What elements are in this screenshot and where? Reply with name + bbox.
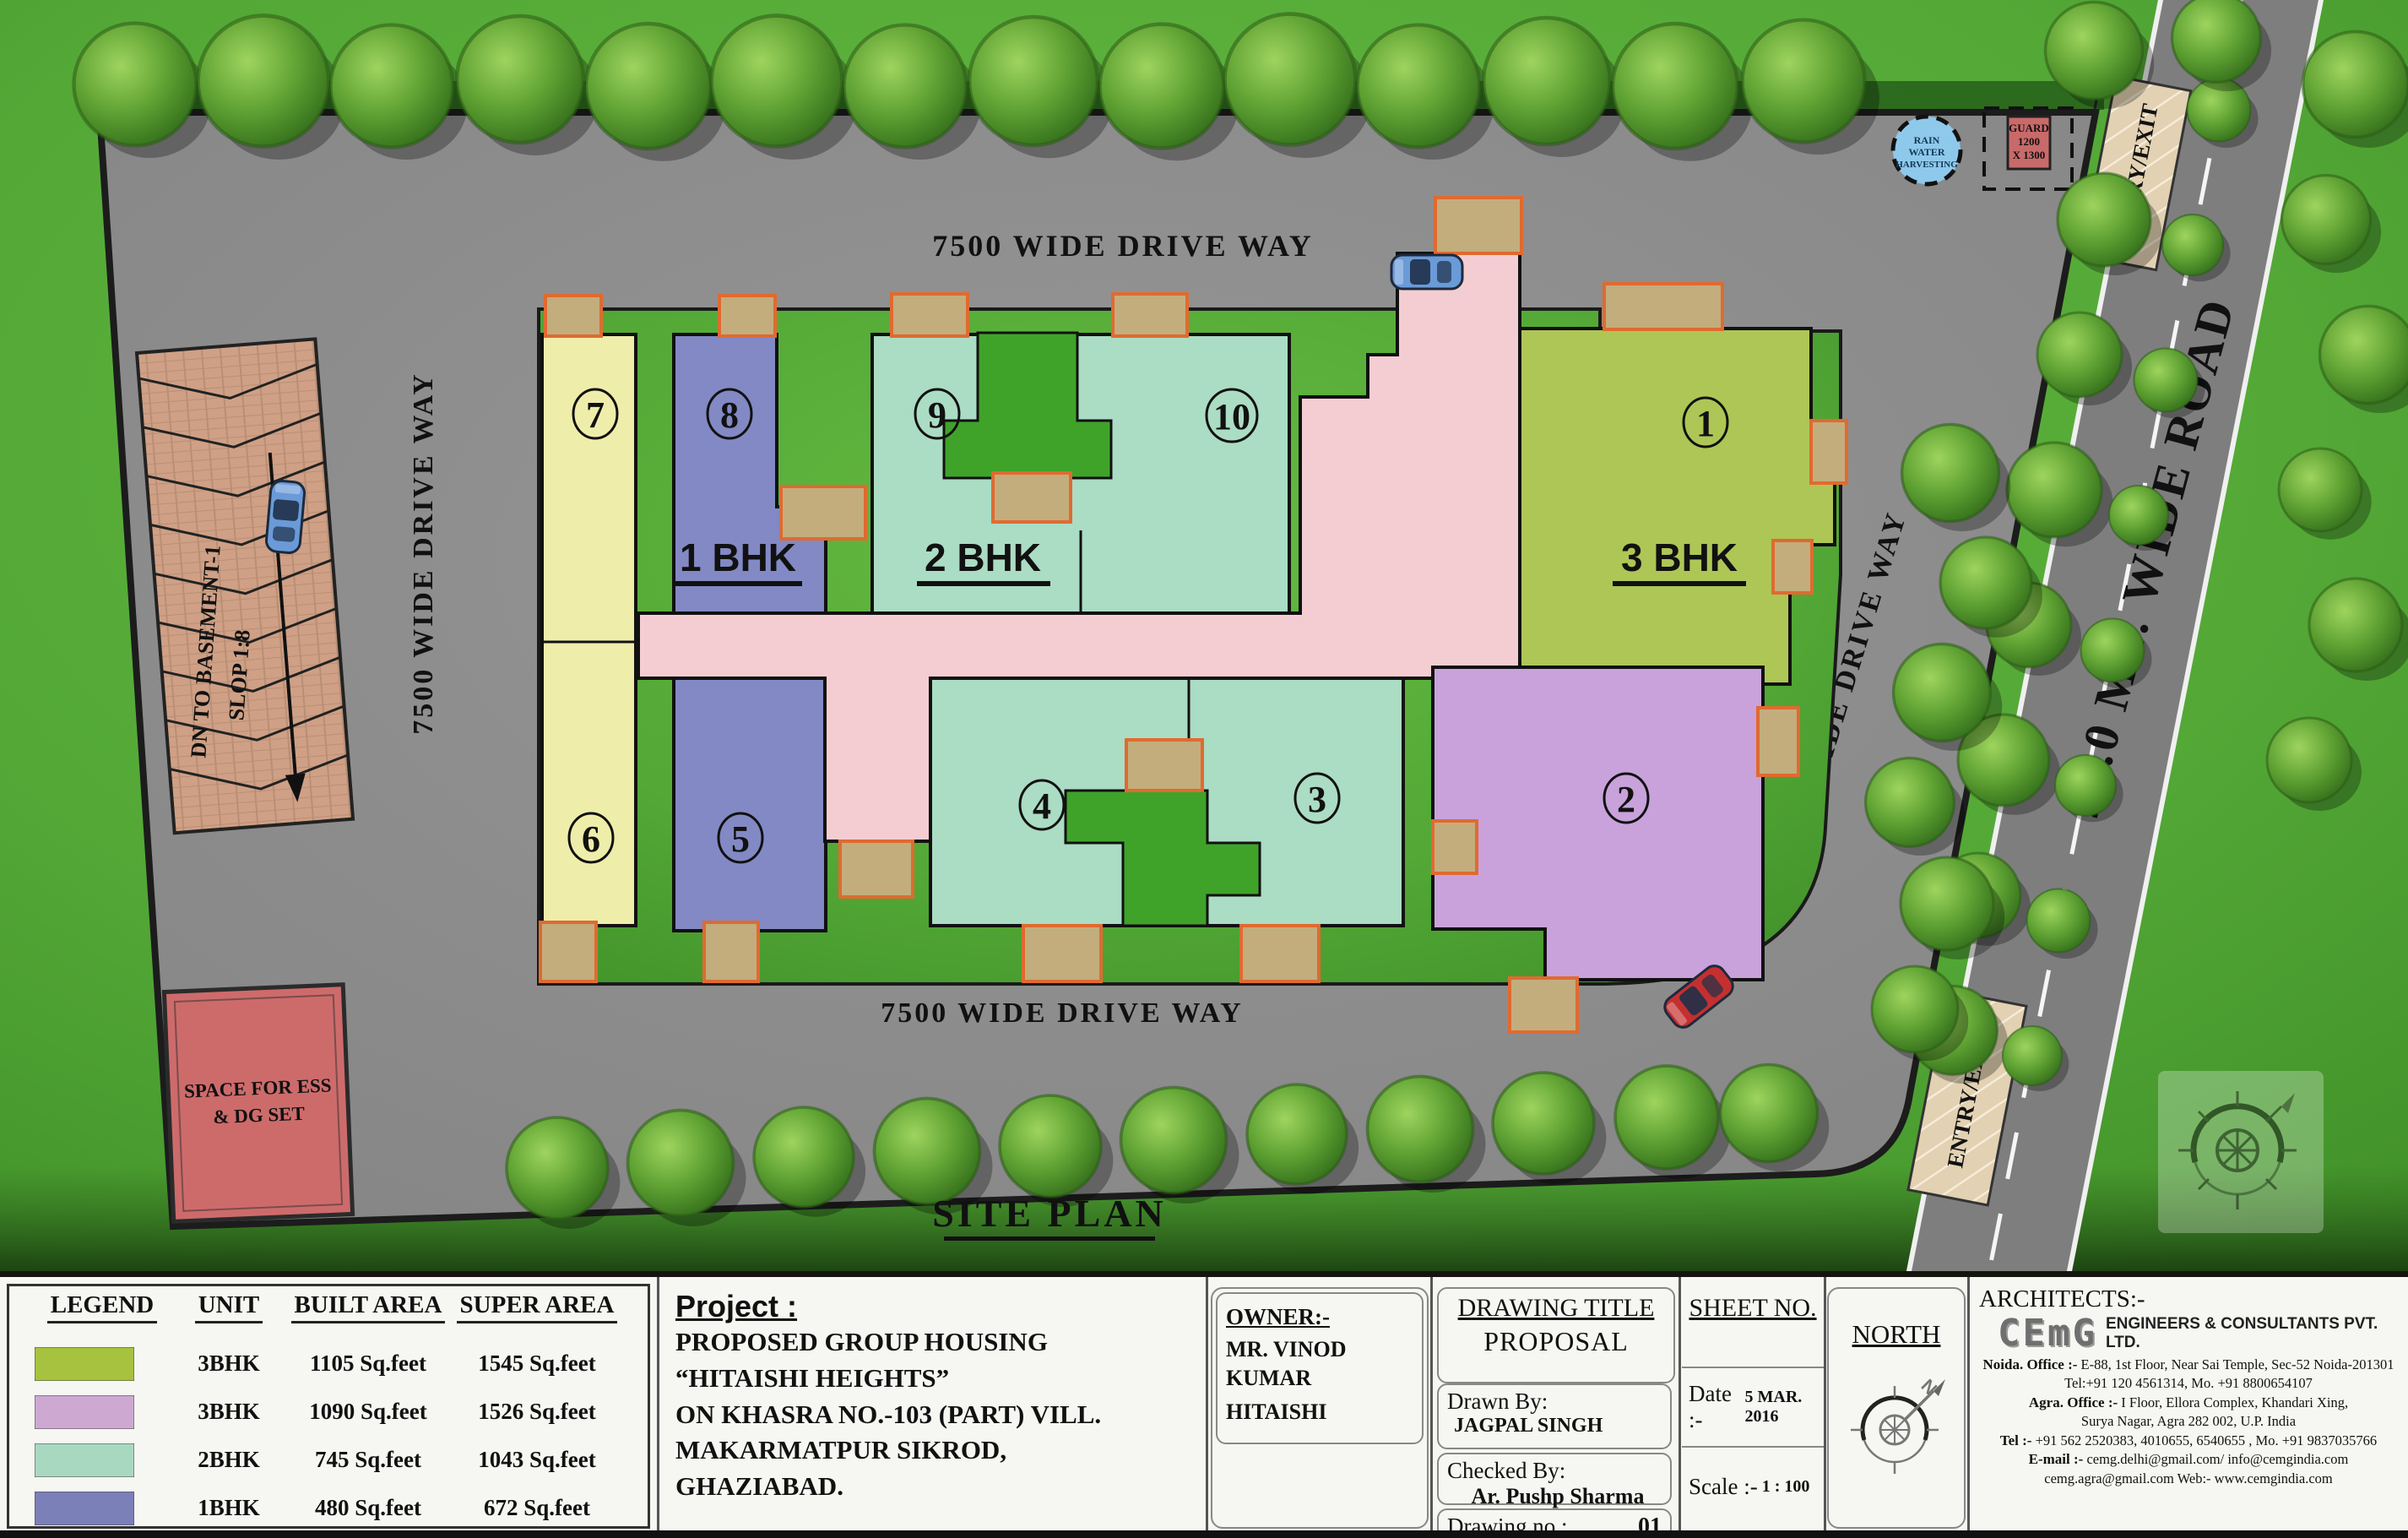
legend-unit: 2BHK bbox=[198, 1447, 260, 1473]
legend-header-built: BUILT AREA bbox=[291, 1291, 446, 1323]
svg-text:2: 2 bbox=[1617, 779, 1635, 820]
svg-text:9: 9 bbox=[928, 394, 946, 436]
compass-watermark-icon bbox=[2158, 1071, 2324, 1233]
driveway-label-top: 7500 WIDE DRIVE WAY bbox=[932, 229, 1313, 263]
svg-text:5: 5 bbox=[731, 818, 750, 860]
svg-text:X 1300: X 1300 bbox=[2013, 149, 2046, 161]
cemg-logo: CEmG bbox=[1998, 1317, 2097, 1351]
site-plan-drawing: 24.0 MT. WIDE ROAD DN TO BASEMENT-1 SLOP… bbox=[0, 0, 2408, 1271]
legend-built-area: 745 Sq.feet bbox=[315, 1447, 421, 1473]
ess-dg-box: SPACE FOR ESS & DG SET bbox=[164, 985, 352, 1222]
svg-text:7: 7 bbox=[586, 394, 605, 436]
north-block: NORTH N bbox=[1827, 1287, 1966, 1529]
legend-super-area: 1545 Sq.feet bbox=[478, 1351, 595, 1377]
legend-super-area: 1526 Sq.feet bbox=[478, 1399, 595, 1425]
title-block: LEGEND UNIT BUILT AREA SUPER AREA 3BHK 1… bbox=[0, 1271, 2408, 1538]
svg-text:6: 6 bbox=[582, 818, 600, 860]
svg-text:8: 8 bbox=[720, 394, 739, 436]
project-line: ON KHASRA NO.-103 (PART) VILL. bbox=[675, 1397, 1201, 1433]
plan-title: SITE PLAN bbox=[932, 1192, 1167, 1241]
svg-text:10: 10 bbox=[1213, 396, 1250, 437]
ess-label-line2: & DG SET bbox=[213, 1103, 306, 1128]
address-line: Noida. Office :- E-88, 1st Floor, Near S… bbox=[1979, 1356, 2398, 1374]
legend-built-area: 1090 Sq.feet bbox=[309, 1399, 426, 1425]
owner-name-line1: MR. VINOD KUMAR bbox=[1226, 1335, 1413, 1393]
scale-value: 1 : 100 bbox=[1758, 1477, 1810, 1497]
legend-header-legend: LEGEND bbox=[47, 1291, 157, 1323]
label-1bhk: 1 BHK bbox=[680, 535, 796, 579]
svg-text:RAIN: RAIN bbox=[1914, 134, 1940, 146]
address-line: Agra. Office :- I Floor, Ellora Complex,… bbox=[1979, 1394, 2398, 1412]
drawing-title-label: DRAWING TITLE bbox=[1439, 1294, 1673, 1323]
project-line: GHAZIABAD. bbox=[675, 1469, 1201, 1505]
label-2bhk: 2 BHK bbox=[925, 535, 1041, 579]
north-label: NORTH bbox=[1829, 1319, 1964, 1350]
legend-built-area: 480 Sq.feet bbox=[315, 1495, 421, 1521]
legend-swatch-2bhk bbox=[35, 1443, 134, 1477]
car-on-ramp bbox=[265, 480, 305, 553]
svg-text:SITE PLAN: SITE PLAN bbox=[932, 1192, 1167, 1235]
legend-swatch-1bhk-a bbox=[35, 1492, 134, 1525]
legend-unit: 1BHK bbox=[198, 1495, 260, 1521]
drawing-no-value: 01 bbox=[1631, 1514, 1662, 1538]
legend-swatch-3bhk-a bbox=[35, 1347, 134, 1381]
checked-by-value: Ar. Pushp Sharma bbox=[1447, 1484, 1662, 1509]
drawing-title-value: PROPOSAL bbox=[1439, 1326, 1673, 1357]
architects-block: ARCHITECTS:- CEmG ENGINEERS & CONSULTANT… bbox=[1971, 1284, 2403, 1530]
legend-table: LEGEND UNIT BUILT AREA SUPER AREA 3BHK 1… bbox=[7, 1284, 650, 1529]
legend-super-area: 672 Sq.feet bbox=[484, 1495, 590, 1521]
owner-name-line2: HITAISHI bbox=[1226, 1398, 1413, 1427]
legend-built-area: 1105 Sq.feet bbox=[310, 1351, 426, 1377]
drawn-by-value: JAGPAL SINGH bbox=[1447, 1415, 1603, 1437]
svg-text:1200: 1200 bbox=[2018, 135, 2040, 148]
project-line: MAKARMATPUR SIKROD, bbox=[675, 1432, 1201, 1469]
owner-label: OWNER:- bbox=[1226, 1304, 1413, 1330]
building-1 bbox=[1520, 329, 1835, 684]
address-line: Tel:+91 120 4561314, Mo. +91 8800654107 bbox=[1979, 1374, 2398, 1393]
address-line: Tel :- +91 562 2520383, 4010655, 6540655… bbox=[1979, 1432, 2398, 1450]
date-value: 5 MAR. 2016 bbox=[1741, 1388, 1824, 1427]
label-3bhk: 3 BHK bbox=[1621, 535, 1738, 579]
driveway-label-left: 7500 WIDE DRIVE WAY bbox=[408, 372, 439, 735]
north-n-glyph: N bbox=[1917, 1375, 1941, 1399]
checked-by-label: Checked By: bbox=[1447, 1458, 1565, 1483]
project-line: PROPOSED GROUP HOUSING bbox=[675, 1324, 1201, 1361]
project-label: Project : bbox=[675, 1289, 1201, 1324]
building-number-10: 10 bbox=[1207, 389, 1257, 442]
legend-header-super: SUPER AREA bbox=[457, 1291, 618, 1323]
drawing-block: DRAWING TITLE PROPOSAL Drawn By: JAGPAL … bbox=[1434, 1285, 1679, 1532]
legend-super-area: 1043 Sq.feet bbox=[478, 1447, 595, 1473]
basement-ramp bbox=[137, 339, 353, 833]
address-line: Surya Nagar, Agra 282 002, U.P. India bbox=[1979, 1412, 2398, 1431]
svg-text:WATER: WATER bbox=[1908, 146, 1944, 158]
scale-label: Scale :- bbox=[1689, 1474, 1758, 1500]
architects-label: ARCHITECTS:- bbox=[1979, 1285, 2398, 1313]
car-top-driveway bbox=[1391, 255, 1462, 289]
legend-unit: 3BHK bbox=[198, 1399, 260, 1425]
drawn-by-label: Drawn By: bbox=[1447, 1389, 1548, 1414]
north-compass-icon: N bbox=[1829, 1350, 1964, 1493]
site-plan-sheet: 24.0 MT. WIDE ROAD DN TO BASEMENT-1 SLOP… bbox=[0, 0, 2408, 1538]
date-label: Date :- bbox=[1689, 1381, 1741, 1433]
svg-text:HARVESTING: HARVESTING bbox=[1895, 160, 1958, 170]
svg-text:GUARD: GUARD bbox=[2009, 122, 2049, 134]
company-name: ENGINEERS & CONSULTANTS PVT. LTD. bbox=[2106, 1315, 2398, 1352]
rain-water-harvesting: RAIN WATER HARVESTING bbox=[1893, 117, 1961, 184]
svg-text:3: 3 bbox=[1308, 779, 1326, 820]
sheet-block: SHEET NO. Date :- 5 MAR. 2016 Scale :- 1… bbox=[1682, 1285, 1824, 1532]
svg-text:4: 4 bbox=[1033, 785, 1051, 827]
sheet-no-label: SHEET NO. bbox=[1689, 1294, 1816, 1323]
svg-text:1: 1 bbox=[1696, 403, 1715, 444]
address-line: E-mail :- cemg.delhi@gmail.com/ info@cem… bbox=[1979, 1450, 2398, 1469]
project-line: “HITAISHI HEIGHTS” bbox=[675, 1361, 1201, 1397]
project-block: Project : PROPOSED GROUP HOUSING “HITAIS… bbox=[660, 1284, 1201, 1529]
owner-block: OWNER:- MR. VINOD KUMAR HITAISHI bbox=[1211, 1287, 1429, 1529]
driveway-label-bottom: 7500 WIDE DRIVE WAY bbox=[881, 997, 1244, 1029]
address-line: cemg.agra@gmail.com Web:- www.cemgindia.… bbox=[1979, 1470, 2398, 1488]
legend-header-unit: UNIT bbox=[195, 1291, 263, 1323]
legend-swatch-3bhk-b bbox=[35, 1395, 134, 1429]
drawing-no-label: Drawing no : bbox=[1447, 1514, 1567, 1538]
legend-unit: 3BHK bbox=[198, 1351, 260, 1377]
